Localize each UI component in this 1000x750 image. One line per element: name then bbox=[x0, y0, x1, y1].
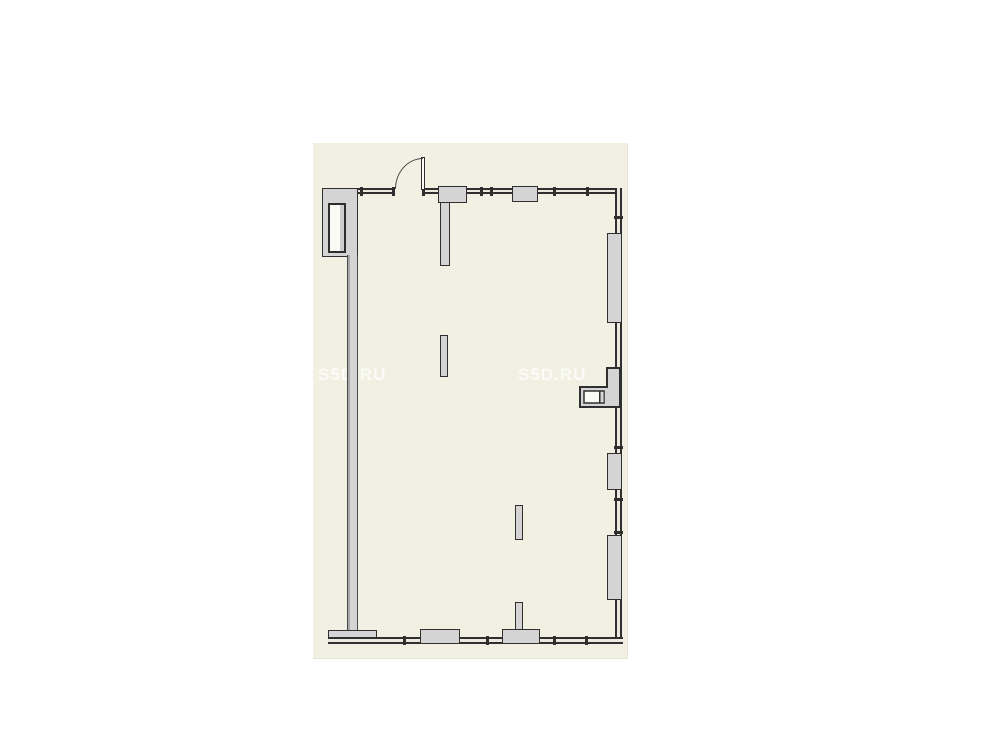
window-mullion-tick bbox=[403, 636, 406, 645]
window-mullion-tick bbox=[553, 636, 556, 645]
column-upper bbox=[440, 335, 448, 377]
pier-niche-window bbox=[328, 203, 346, 253]
floor-plan: S5D.RU S5D.RU bbox=[313, 143, 628, 659]
window-mullion-tick bbox=[553, 187, 556, 196]
window-mullion-tick bbox=[360, 187, 363, 196]
vent-duct bbox=[579, 367, 621, 409]
window-mullion-tick bbox=[614, 498, 623, 501]
window-mullion-tick bbox=[486, 636, 489, 645]
window-mullion-tick bbox=[614, 531, 623, 534]
pilaster-top-2 bbox=[512, 186, 538, 202]
window-mullion-tick bbox=[586, 187, 589, 196]
pilaster-bottom-2 bbox=[502, 629, 540, 644]
column-lower bbox=[515, 505, 523, 540]
stub-wall-bottom bbox=[515, 602, 523, 631]
window-mullion-tick bbox=[490, 187, 493, 196]
window-bay-right-1 bbox=[607, 233, 622, 323]
pilaster-top-1 bbox=[438, 186, 467, 203]
wall-bottom-window-band bbox=[328, 637, 623, 644]
window-mullion-tick bbox=[614, 446, 623, 449]
pier-top-left bbox=[322, 188, 358, 257]
window-mullion-tick bbox=[585, 636, 588, 645]
door-swing-arc bbox=[395, 158, 423, 189]
window-bay-right-2 bbox=[607, 453, 622, 490]
pilaster-bottom-1 bbox=[420, 629, 460, 644]
window-bay-right-3 bbox=[607, 535, 622, 600]
stub-wall-top bbox=[440, 202, 450, 266]
watermark-right: S5D.RU bbox=[518, 365, 586, 385]
window-mullion-tick bbox=[614, 216, 623, 219]
wall-top-window-left bbox=[358, 188, 395, 194]
window-mullion-tick bbox=[480, 187, 483, 196]
niche-shadow bbox=[340, 205, 344, 251]
vent-duct-cap bbox=[601, 393, 604, 402]
wall-left bbox=[347, 255, 358, 632]
vent-duct-divider bbox=[599, 392, 601, 403]
